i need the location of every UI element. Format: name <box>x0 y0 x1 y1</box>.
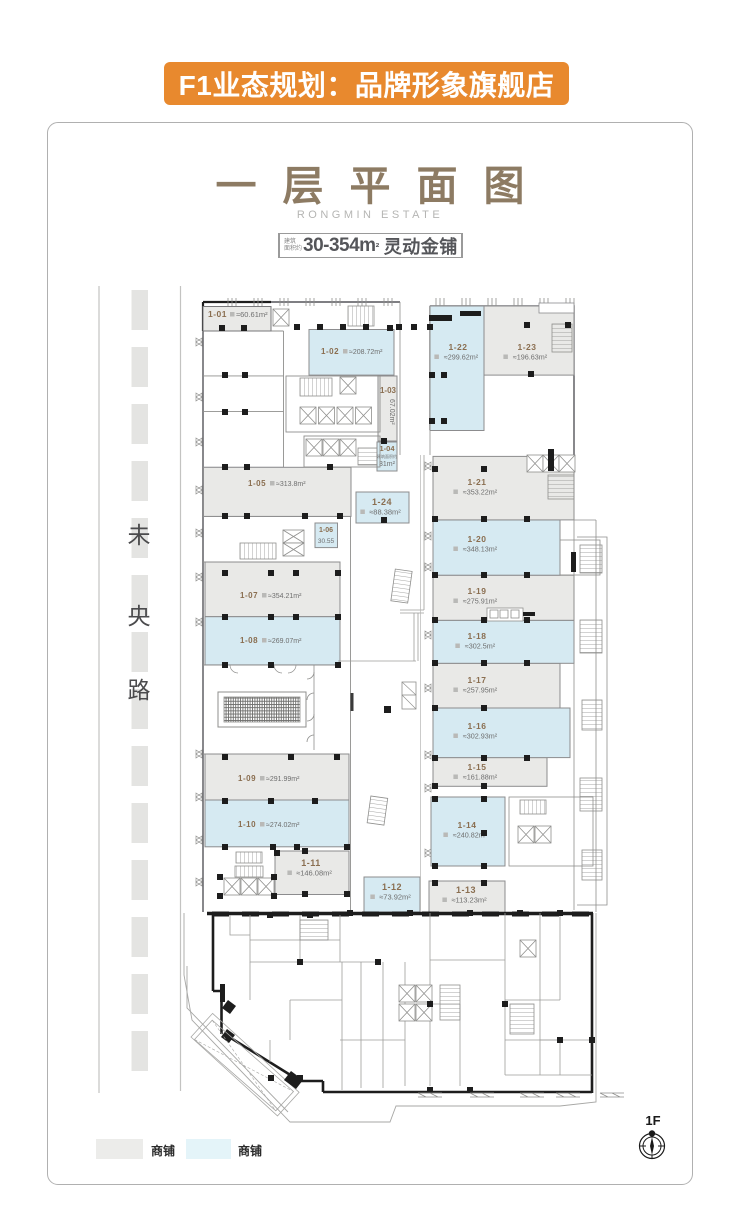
svg-text:30.55: 30.55 <box>318 538 335 545</box>
svg-text:≈353.22m²: ≈353.22m² <box>463 488 498 497</box>
svg-text:1-11: 1-11 <box>301 858 321 868</box>
svg-text:1-06: 1-06 <box>319 527 333 534</box>
svg-text:1-02: 1-02 <box>321 347 339 356</box>
svg-text:≈257.95m²: ≈257.95m² <box>463 686 498 695</box>
svg-text:1-24: 1-24 <box>372 497 392 507</box>
svg-text:央: 央 <box>128 603 151 629</box>
svg-text:≈313.8m²: ≈313.8m² <box>276 481 306 488</box>
svg-text:≈348.13m²: ≈348.13m² <box>463 545 498 554</box>
svg-text:≈275.91m²: ≈275.91m² <box>463 597 498 606</box>
svg-text:≈208.72m²: ≈208.72m² <box>349 349 383 356</box>
svg-text:≈274.02m²: ≈274.02m² <box>266 822 300 829</box>
svg-text:67.02m²: 67.02m² <box>388 399 395 425</box>
svg-text:≈113.23m²: ≈113.23m² <box>451 896 487 905</box>
svg-text:1-18: 1-18 <box>467 631 486 641</box>
svg-text:≈73.92m²: ≈73.92m² <box>379 893 411 902</box>
svg-text:1-21: 1-21 <box>467 477 486 487</box>
svg-text:1-07: 1-07 <box>240 591 258 600</box>
svg-text:1F: 1F <box>645 1113 660 1128</box>
svg-text:1-03: 1-03 <box>380 386 397 395</box>
svg-text:1-22: 1-22 <box>448 342 467 352</box>
svg-text:1-14: 1-14 <box>457 820 476 830</box>
svg-text:1-17: 1-17 <box>467 675 486 685</box>
svg-text:1-19: 1-19 <box>467 586 486 596</box>
svg-text:≈269.07m²: ≈269.07m² <box>268 638 302 645</box>
svg-text:1-04: 1-04 <box>379 444 395 453</box>
svg-text:≈196.63m²: ≈196.63m² <box>513 353 548 362</box>
svg-text:1-16: 1-16 <box>467 721 486 731</box>
svg-text:未: 未 <box>128 522 151 548</box>
svg-text:1-01: 1-01 <box>208 309 227 319</box>
svg-text:≈299.62m²: ≈299.62m² <box>444 353 479 362</box>
svg-text:1-12: 1-12 <box>382 882 402 892</box>
svg-text:1-05: 1-05 <box>248 479 266 488</box>
svg-text:1-09: 1-09 <box>238 774 256 783</box>
svg-text:≈354.21m²: ≈354.21m² <box>268 593 302 600</box>
svg-text:1-23: 1-23 <box>517 342 536 352</box>
svg-text:≈291.99m²: ≈291.99m² <box>266 776 300 783</box>
svg-text:路: 路 <box>128 677 151 703</box>
svg-text:≈60.61m²: ≈60.61m² <box>236 310 268 319</box>
svg-text:1-15: 1-15 <box>467 762 486 772</box>
svg-text:≈88.38m²: ≈88.38m² <box>369 508 401 517</box>
svg-text:≈161.88m²: ≈161.88m² <box>463 773 498 782</box>
svg-text:≈302.93m²: ≈302.93m² <box>463 732 498 741</box>
svg-text:1-08: 1-08 <box>240 636 258 645</box>
svg-text:1-10: 1-10 <box>238 820 256 829</box>
svg-text:31m²: 31m² <box>379 461 396 468</box>
svg-text:≈302.5m²: ≈302.5m² <box>465 642 496 651</box>
svg-text:1-13: 1-13 <box>456 885 476 895</box>
svg-text:1-20: 1-20 <box>467 534 486 544</box>
svg-text:≈146.08m²: ≈146.08m² <box>296 869 332 878</box>
